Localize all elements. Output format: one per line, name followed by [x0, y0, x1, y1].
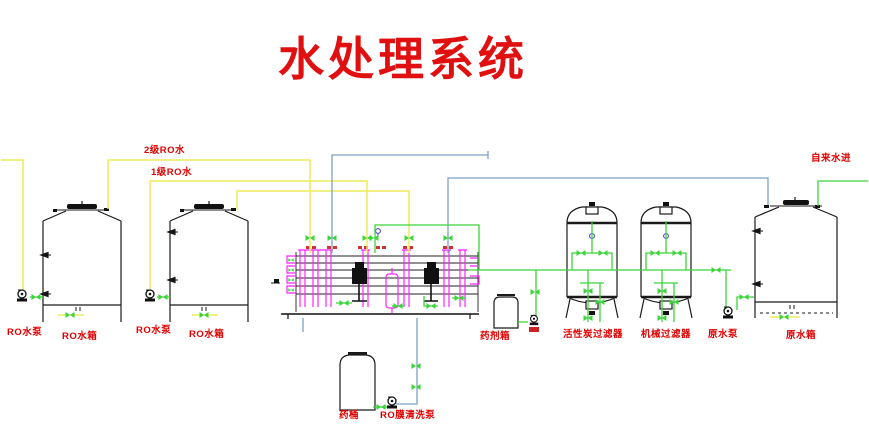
ro-water-tank-2 [168, 201, 248, 322]
water-treatment-diagram: 水处理系统 2级RO水 1级RO水 自来水进 RO水泵 RO水箱 RO水泵 RO… [0, 0, 869, 425]
page-title: 水处理系统 [278, 34, 598, 86]
label-chem-barrel: 药桶 [339, 411, 359, 421]
label-raw-water-tank: 原水箱 [786, 331, 816, 341]
label-ro-cleaning-pump: RO膜清洗泵 [380, 411, 435, 421]
high-pressure-pumps [352, 262, 439, 301]
dosing-pump-icon [530, 315, 539, 325]
pressure-gauge-icons [376, 229, 669, 244]
label-stage1-ro-line: 1级RO水 [151, 168, 192, 178]
label-ro-tank-2: RO水箱 [189, 330, 224, 340]
ro-pump-1-icon [17, 290, 27, 302]
label-mechanical-filter: 机械过滤器 [641, 330, 691, 340]
dosing-tank [494, 295, 518, 328]
ro-pump-2-icon [145, 290, 155, 302]
label-carbon-filter: 活性炭过滤器 [563, 330, 623, 340]
mechanical-filter [640, 202, 692, 318]
label-tap-water-in: 自来水进 [811, 154, 851, 164]
raw-water-pump-icon [723, 307, 733, 319]
label-ro-pump-1: RO水泵 [7, 328, 42, 338]
cleaning-pump-icon [387, 397, 397, 409]
label-ro-tank-1: RO水箱 [62, 332, 97, 342]
instrument-marks [306, 246, 453, 249]
membrane-piping [287, 250, 479, 313]
activated-carbon-filter [566, 202, 618, 318]
label-stage2-ro-line: 2级RO水 [144, 146, 185, 156]
label-dosing-tank: 药剂箱 [480, 332, 510, 342]
chemical-barrel [340, 354, 375, 411]
label-ro-pump-2: RO水泵 [136, 326, 171, 336]
valves [32, 235, 789, 410]
ro-membrane-skid [271, 246, 479, 319]
label-raw-water-pump: 原水泵 [708, 330, 738, 340]
dosing-pump-base [529, 327, 539, 332]
ro-water-tank-1 [41, 201, 121, 322]
raw-water-tank [753, 197, 837, 318]
